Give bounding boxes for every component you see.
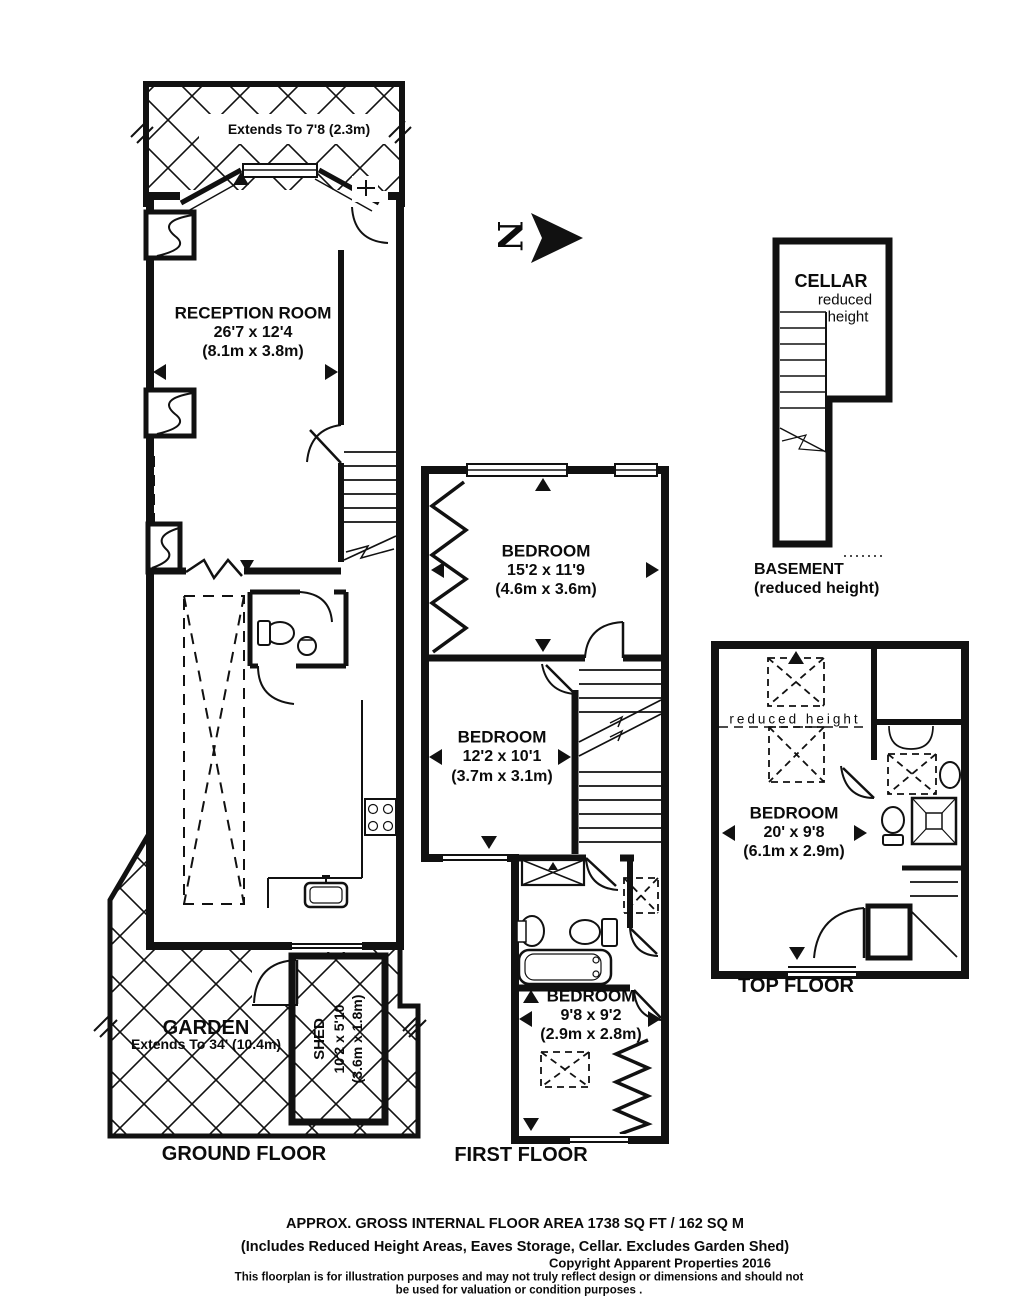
- footer-area-line: APPROX. GROSS INTERNAL FLOOR AREA 1738 S…: [286, 1217, 744, 1232]
- bedroom-middle-size-metric: (3.7m x 3.1m): [451, 769, 552, 785]
- ground-floor-plan: [131, 84, 411, 952]
- floorplan-page: N Extends To 7'8 (2.3m) RECEPTION ROOM 2…: [0, 0, 1024, 1302]
- bedroom-front-size-metric: (4.6m x 3.6m): [495, 582, 596, 598]
- top-bedroom-name: BEDROOM: [750, 805, 839, 822]
- bay-extends-note: Extends To 7'8 (2.3m): [228, 122, 370, 136]
- cellar-name: CELLAR: [795, 272, 868, 290]
- top-bedroom-size-imperial: 20' x 9'8: [764, 825, 825, 841]
- footer-includes-line: (Includes Reduced Height Areas, Eaves St…: [241, 1240, 789, 1255]
- shed-size-metric: (3.6m x 1.8m): [348, 995, 366, 1084]
- footer-copyright-line: Copyright Apparent Properties 2016: [549, 1257, 771, 1270]
- basement-label: BASEMENT: [754, 562, 844, 578]
- shed-size-imperial: 10'2 x 5'10: [330, 995, 348, 1084]
- bedroom-front-size-imperial: 15'2 x 11'9: [507, 563, 585, 579]
- bedroom-back-name: BEDROOM: [547, 988, 636, 1005]
- cellar-note-line1: reduced: [818, 293, 872, 308]
- shed-name: SHED: [310, 995, 330, 1084]
- top-floor-label: TOP FLOOR: [738, 976, 854, 996]
- garden-name: GARDEN: [163, 1018, 250, 1038]
- floorplan-drawing: [0, 0, 1024, 1302]
- bedroom-back-size-imperial: 9'8 x 9'2: [561, 1008, 622, 1024]
- top-floor-reduced-height-note: reduced height: [729, 712, 860, 726]
- bedroom-middle-size-imperial: 12'2 x 10'1: [463, 749, 542, 765]
- reception-room-size-imperial: 26'7 x 12'4: [214, 325, 293, 341]
- footer-disclaimer-line1: This floorplan is for illustration purpo…: [235, 1272, 804, 1284]
- footer-disclaimer-line2: be used for valuation or condition purpo…: [396, 1285, 643, 1297]
- top-bedroom-size-metric: (6.1m x 2.9m): [743, 844, 844, 860]
- bedroom-middle-name: BEDROOM: [458, 729, 547, 746]
- shed-label: SHED 10'2 x 5'10 (3.6m x 1.8m): [310, 995, 366, 1084]
- bedroom-front-name: BEDROOM: [502, 543, 591, 560]
- north-label: N: [489, 220, 529, 251]
- first-floor-label: FIRST FLOOR: [454, 1145, 587, 1165]
- garden-size-note: Extends To 34' (10.4m): [131, 1037, 281, 1051]
- cellar-note-line2: height: [828, 310, 869, 325]
- bedroom-back-size-metric: (2.9m x 2.8m): [540, 1027, 641, 1043]
- reception-room-size-metric: (8.1m x 3.8m): [202, 344, 303, 360]
- reception-room-name: RECEPTION ROOM: [175, 305, 332, 322]
- basement-sublabel: (reduced height): [754, 581, 879, 597]
- north-arrow-icon: [531, 213, 583, 263]
- ground-floor-label: GROUND FLOOR: [162, 1144, 326, 1164]
